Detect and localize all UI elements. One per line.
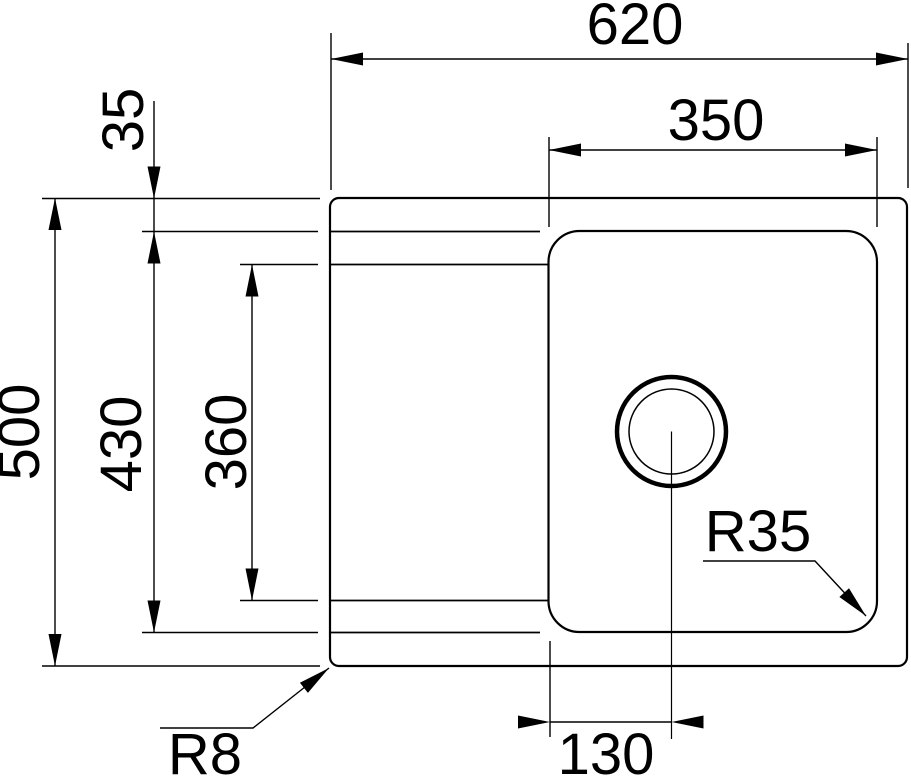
arrow-35-bottom-430-top xyxy=(148,232,161,264)
arrow-r8-leader xyxy=(300,668,329,693)
sink-outlines xyxy=(330,198,907,666)
label-drainer-length: 360 xyxy=(194,394,259,491)
sink-technical-drawing: 620 350 35 500 430 360 130 R35 R8 xyxy=(0,0,911,782)
arrow-430-bottom xyxy=(148,601,161,633)
label-basin-length: 430 xyxy=(89,396,154,493)
arrow-500-bottom xyxy=(49,634,62,666)
label-outer-corner-radius: R8 xyxy=(168,722,242,782)
arrow-130-right xyxy=(672,716,704,729)
label-rim-inset: 35 xyxy=(91,88,156,153)
leader-line-r8 xyxy=(160,668,329,728)
dimension-lines xyxy=(55,59,908,728)
label-overall-depth: 500 xyxy=(0,384,52,481)
label-bowl-corner-radius: R35 xyxy=(705,499,811,564)
arrowheads xyxy=(49,53,909,729)
label-overall-width: 620 xyxy=(587,0,684,57)
arrow-620-left xyxy=(331,53,363,66)
arrow-500-top xyxy=(49,198,62,230)
arrow-350-left xyxy=(549,144,581,157)
leader-line-r35 xyxy=(703,561,866,616)
arrow-360-bottom xyxy=(246,569,259,601)
dimension-labels: 620 350 35 500 430 360 130 R35 R8 xyxy=(0,0,811,782)
drawing-canvas: 620 350 35 500 430 360 130 R35 R8 xyxy=(0,0,911,782)
arrow-620-right xyxy=(876,53,908,66)
label-bowl-width: 350 xyxy=(668,88,765,153)
bowl-outline xyxy=(549,231,878,632)
arrow-360-top xyxy=(246,265,259,297)
arrow-130-left xyxy=(518,716,550,729)
arrow-350-right xyxy=(845,144,877,157)
label-drain-offset: 130 xyxy=(558,722,655,782)
arrow-35-top xyxy=(148,167,161,199)
